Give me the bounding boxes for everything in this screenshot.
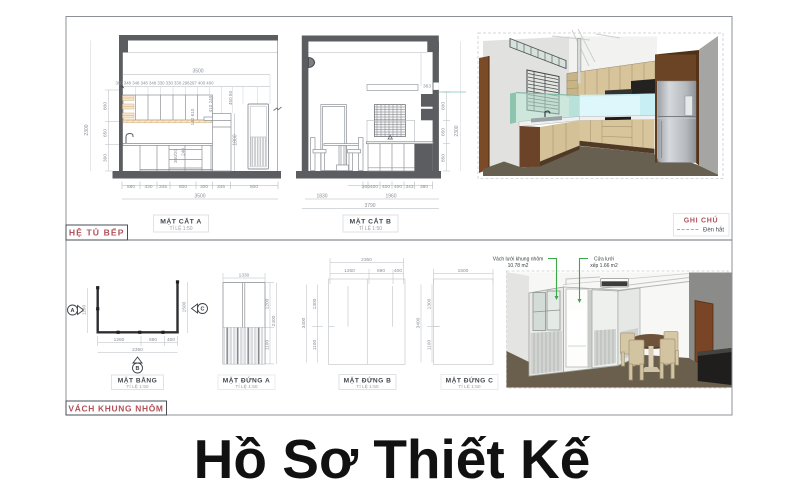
svg-text:1800: 1800 xyxy=(233,134,239,145)
svg-text:TỈ LỆ 1:50: TỈ LỆ 1:50 xyxy=(169,224,192,232)
svg-text:800: 800 xyxy=(179,184,187,190)
svg-text:400: 400 xyxy=(394,268,402,274)
svg-text:3500: 3500 xyxy=(192,69,203,75)
svg-text:MẶT BẰNG: MẶT BẰNG xyxy=(118,375,158,384)
svg-text:Vách lưới khung nhôm: Vách lưới khung nhôm xyxy=(493,257,544,263)
svg-text:2300: 2300 xyxy=(454,125,460,136)
svg-text:800: 800 xyxy=(250,184,258,190)
svg-text:1330: 1330 xyxy=(239,273,250,279)
svg-text:MẶT CẮT B: MẶT CẮT B xyxy=(350,217,392,226)
svg-text:1300: 1300 xyxy=(312,298,318,309)
svg-text:Cửa lưới: Cửa lưới xyxy=(594,256,614,263)
svg-text:HỆ TỦ BẾP: HỆ TỦ BẾP xyxy=(69,227,125,238)
svg-text:410 240: 410 240 xyxy=(208,95,213,112)
svg-text:400: 400 xyxy=(167,337,175,343)
svg-text:363: 363 xyxy=(423,84,431,90)
svg-text:1830: 1830 xyxy=(316,194,327,200)
svg-text:GHI CHÚ: GHI CHÚ xyxy=(684,216,718,225)
svg-text:MẶT CẮT A: MẶT CẮT A xyxy=(160,217,202,226)
svg-text:MẶT ĐỨNG A: MẶT ĐỨNG A xyxy=(223,375,271,384)
svg-text:600: 600 xyxy=(441,102,447,110)
svg-text:345: 345 xyxy=(217,184,225,190)
svg-text:1100: 1100 xyxy=(312,340,318,351)
svg-text:400: 400 xyxy=(382,184,390,190)
svg-text:MẶT ĐỨNG C: MẶT ĐỨNG C xyxy=(446,375,494,384)
svg-text:240: 240 xyxy=(181,148,186,156)
svg-text:A: A xyxy=(71,308,75,314)
svg-text:650: 650 xyxy=(441,128,447,136)
svg-text:380: 380 xyxy=(420,184,428,190)
svg-text:1200: 1200 xyxy=(265,298,271,309)
svg-text:2400: 2400 xyxy=(271,315,277,326)
svg-text:360/20: 360/20 xyxy=(173,149,178,163)
svg-text:450 50: 450 50 xyxy=(228,91,233,105)
svg-text:360 348 348 348 348 330 330 33: 360 348 348 348 348 330 330 330 298297 4… xyxy=(116,81,215,86)
svg-text:430: 430 xyxy=(144,184,152,190)
svg-text:3500: 3500 xyxy=(194,194,205,200)
svg-text:390: 390 xyxy=(103,154,109,162)
svg-text:1960: 1960 xyxy=(385,194,396,200)
svg-text:1500: 1500 xyxy=(458,268,469,274)
svg-text:2350: 2350 xyxy=(361,257,372,263)
svg-text:1100: 1100 xyxy=(265,340,271,351)
svg-text:690: 690 xyxy=(149,337,157,343)
svg-text:650: 650 xyxy=(103,129,109,137)
svg-text:1260: 1260 xyxy=(344,268,355,274)
svg-text:B: B xyxy=(136,366,140,372)
svg-text:Hồ Sơ Thiết Kế: Hồ Sơ Thiết Kế xyxy=(194,428,591,490)
svg-text:1300: 1300 xyxy=(427,298,433,309)
svg-text:1260: 1260 xyxy=(114,337,125,343)
svg-text:xếp 1.66 m2: xếp 1.66 m2 xyxy=(590,263,618,269)
svg-text:TỈ LỆ 1:50: TỈ LỆ 1:50 xyxy=(359,224,382,232)
svg-text:800: 800 xyxy=(103,102,109,110)
svg-text:2350: 2350 xyxy=(132,347,143,353)
svg-text:10.78 m2: 10.78 m2 xyxy=(508,263,529,269)
svg-text:1500: 1500 xyxy=(182,301,188,312)
svg-text:690: 690 xyxy=(377,268,385,274)
svg-text:1100: 1100 xyxy=(427,340,433,351)
svg-text:C: C xyxy=(201,307,205,313)
svg-text:343: 343 xyxy=(405,184,413,190)
svg-text:140 610: 140 610 xyxy=(190,108,195,125)
svg-text:580: 580 xyxy=(127,184,135,190)
svg-text:850: 850 xyxy=(441,154,447,162)
svg-text:Đèn hắt: Đèn hắt xyxy=(703,227,724,234)
svg-text:3400: 3400 xyxy=(301,317,307,328)
svg-text:345: 345 xyxy=(159,184,167,190)
svg-text:400: 400 xyxy=(394,184,402,190)
svg-text:300: 300 xyxy=(200,184,208,190)
svg-text:VÁCH KHUNG NHÔM: VÁCH KHUNG NHÔM xyxy=(68,403,163,414)
svg-text:MẶT ĐỨNG B: MẶT ĐỨNG B xyxy=(344,375,392,384)
svg-text:2300: 2300 xyxy=(84,124,90,135)
svg-text:3400: 3400 xyxy=(416,317,422,328)
svg-text:3790: 3790 xyxy=(364,203,375,209)
svg-text:200400: 200400 xyxy=(362,184,378,190)
